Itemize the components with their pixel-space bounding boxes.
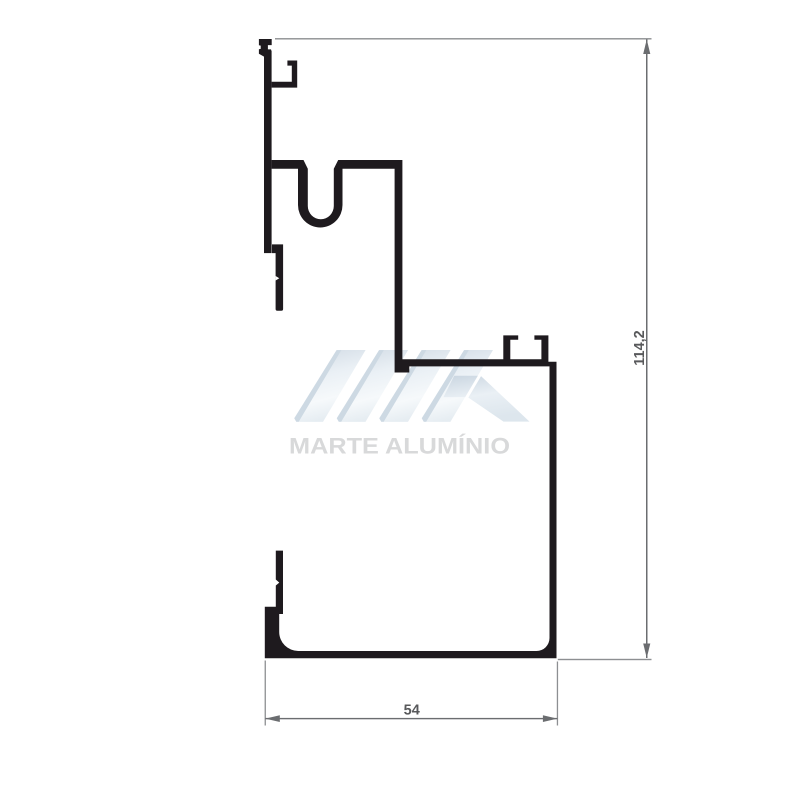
svg-text:MARTE ALUMÍNIO: MARTE ALUMÍNIO [289, 434, 510, 459]
svg-text:54: 54 [404, 703, 420, 719]
svg-text:114,2: 114,2 [632, 330, 648, 366]
